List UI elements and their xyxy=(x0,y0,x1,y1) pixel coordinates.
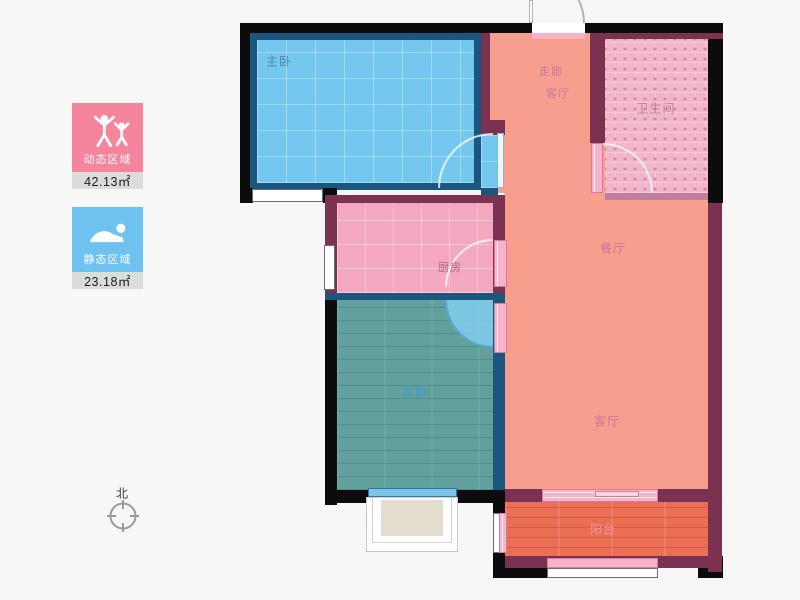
master-bedroom-door-leaf xyxy=(497,133,504,188)
corridor-floor xyxy=(490,33,590,193)
wall-right-outer xyxy=(708,203,722,572)
room-label-bathroom: 卫生间 xyxy=(636,100,675,117)
balcony-bottom-window xyxy=(547,558,658,568)
room-label-hall-upper: 客厅 xyxy=(546,85,570,101)
dining-living-floor xyxy=(505,193,708,489)
dynamic-area-text: 42.13㎡ xyxy=(84,171,131,190)
entrance-opening xyxy=(532,23,585,33)
bay-window-inner xyxy=(379,498,445,538)
wall-bathroom-bottom-low xyxy=(605,193,708,200)
floor-plan-viewer: 动态区域 42.13㎡ 静态区域 23.18㎡ 北 xyxy=(0,0,800,600)
wall-bathroom-left xyxy=(590,33,605,143)
entrance-door-arc xyxy=(532,0,585,23)
wall-living-balcony-left xyxy=(505,489,542,502)
wall-kitchen-second-divider xyxy=(325,293,505,300)
room-label-balcony: 阳台 xyxy=(590,521,616,538)
wall-bathroom-top-inner xyxy=(590,33,723,39)
legend-static-area-card[interactable]: 静态区域 xyxy=(72,207,143,272)
balcony-sliding-door-handle xyxy=(595,491,639,497)
legend-dynamic-area-card[interactable]: 动态区域 xyxy=(72,103,143,172)
room-label-corridor: 走廊 xyxy=(539,63,563,79)
legend-static-area-value: 23.18㎡ xyxy=(72,272,143,289)
room-label-kitchen: 厨房 xyxy=(438,259,462,275)
room-label-dining: 餐厅 xyxy=(600,240,626,257)
balcony-bottom-sill xyxy=(547,568,658,578)
kitchen-door-leaf xyxy=(494,240,507,287)
master-bedroom-window xyxy=(252,189,323,202)
balcony-side-window-leaf xyxy=(499,513,507,553)
wall-top xyxy=(240,23,723,33)
person-resting-icon xyxy=(86,215,130,249)
wall-bathroom-right xyxy=(708,23,723,203)
entrance-door-leaf xyxy=(529,0,533,23)
entrance-sill xyxy=(532,33,585,39)
wall-left xyxy=(240,23,250,203)
legend-dynamic-label: 动态区域 xyxy=(84,151,132,167)
kitchen-window xyxy=(324,245,335,290)
compass-icon xyxy=(106,499,140,533)
wall-living-balcony-right xyxy=(658,489,710,502)
static-area-text: 23.18㎡ xyxy=(84,271,131,290)
second-bedroom-door-leaf xyxy=(494,303,507,353)
people-active-icon xyxy=(86,113,130,149)
wall-second-left xyxy=(325,293,337,505)
second-bedroom-window xyxy=(368,488,457,497)
legend-static-label: 静态区域 xyxy=(84,251,132,267)
bathroom-door-leaf xyxy=(591,143,603,193)
legend-dynamic-area-value: 42.13㎡ xyxy=(72,172,143,189)
wall-master-right xyxy=(481,33,490,132)
room-label-master-bedroom: 主卧 xyxy=(266,53,292,70)
wall-kitchen-top xyxy=(325,195,505,203)
room-label-living: 客厅 xyxy=(594,413,620,430)
room-label-second-bedroom: 次卧 xyxy=(401,382,429,401)
